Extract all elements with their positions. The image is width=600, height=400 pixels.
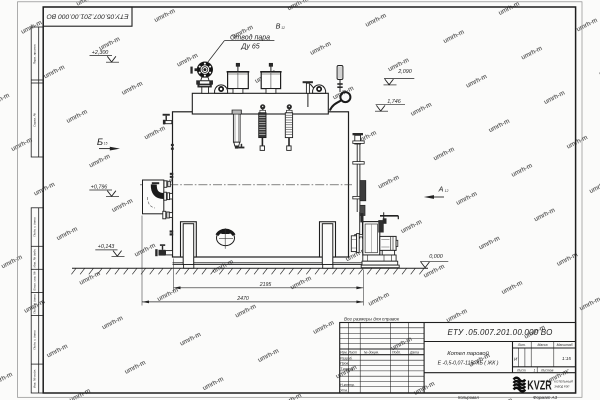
svg-text:Е -0,5-0,07-115- КБ ( ЖК ): Е -0,5-0,07-115- КБ ( ЖК ) <box>438 361 499 367</box>
svg-text:А: А <box>438 184 444 193</box>
svg-text:Пров.: Пров. <box>340 362 349 366</box>
svg-text:Отвод пара: Отвод пара <box>230 33 270 41</box>
svg-text:1:15: 1:15 <box>562 356 571 361</box>
svg-text:Все размеры для справок: Все размеры для справок <box>344 317 400 322</box>
svg-text:Взам. инв. №: Взам. инв. № <box>33 271 37 291</box>
svg-text:Масштаб: Масштаб <box>557 343 573 347</box>
svg-text:Формат А3: Формат А3 <box>533 395 558 400</box>
svg-text:+2,300: +2,300 <box>92 50 109 56</box>
svg-text:2,090: 2,090 <box>397 69 412 75</box>
svg-text:КОТЕЛЬНЫЙ: КОТЕЛЬНЫЙ <box>554 380 573 384</box>
svg-text:2470: 2470 <box>236 296 249 302</box>
svg-text:15: 15 <box>104 141 108 145</box>
svg-text:ЕТУ.05.007.201.00.000 ВО: ЕТУ.05.007.201.00.000 ВО <box>46 13 129 20</box>
svg-text:+0,796: +0,796 <box>91 184 108 190</box>
svg-text:Перв. примен.: Перв. примен. <box>33 44 37 65</box>
svg-text:Справ. №: Справ. № <box>33 112 37 127</box>
svg-text:Дата: Дата <box>409 351 419 355</box>
svg-text:Инв. № дубл.: Инв. № дубл. <box>33 248 37 267</box>
svg-text:Котел паровой: Котел паровой <box>447 350 489 357</box>
svg-text:KVZR: KVZR <box>527 377 552 392</box>
svg-text:Н.контр.: Н.контр. <box>340 383 354 387</box>
svg-text:Копировал: Копировал <box>458 395 479 400</box>
svg-text:Утв.: Утв. <box>340 388 348 392</box>
svg-text:В: В <box>276 22 281 31</box>
svg-text:Подп. и дата: Подп. и дата <box>33 330 37 350</box>
svg-text:2195: 2195 <box>259 282 272 288</box>
svg-text:12: 12 <box>445 189 449 193</box>
svg-text:Инв. № подл.: Инв. № подл. <box>33 369 37 388</box>
svg-text:Лист: Лист <box>516 368 526 372</box>
svg-text:Лит.: Лит. <box>517 343 526 347</box>
svg-text:1: 1 <box>534 368 536 372</box>
svg-text:№ докум.: № докум. <box>364 351 379 355</box>
svg-text:12: 12 <box>281 26 285 30</box>
svg-text:ЕТУ .05.007.201.00.000 ВО: ЕТУ .05.007.201.00.000 ВО <box>447 328 552 337</box>
svg-text:Подп. и дата: Подп. и дата <box>33 217 37 237</box>
svg-text:Изм. Лист: Изм. Лист <box>340 351 357 355</box>
svg-text:ЗАВОД РЭП: ЗАВОД РЭП <box>554 385 570 389</box>
svg-text:1,746: 1,746 <box>387 99 401 105</box>
svg-text:Подп. и дата: Подп. и дата <box>33 294 37 314</box>
svg-text:Ду 65: Ду 65 <box>240 43 259 50</box>
svg-text:Листов: Листов <box>540 368 554 372</box>
svg-text:Разраб.: Разраб. <box>340 356 352 360</box>
svg-text:Подп.: Подп. <box>392 351 401 355</box>
svg-text:+0,143: +0,143 <box>98 244 115 250</box>
svg-text:Масса: Масса <box>537 343 547 347</box>
svg-text:2: 2 <box>566 368 569 372</box>
svg-text:0,000: 0,000 <box>429 254 443 260</box>
svg-text:Б: Б <box>97 137 103 148</box>
svg-text:Т.контр.: Т.контр. <box>340 367 354 371</box>
